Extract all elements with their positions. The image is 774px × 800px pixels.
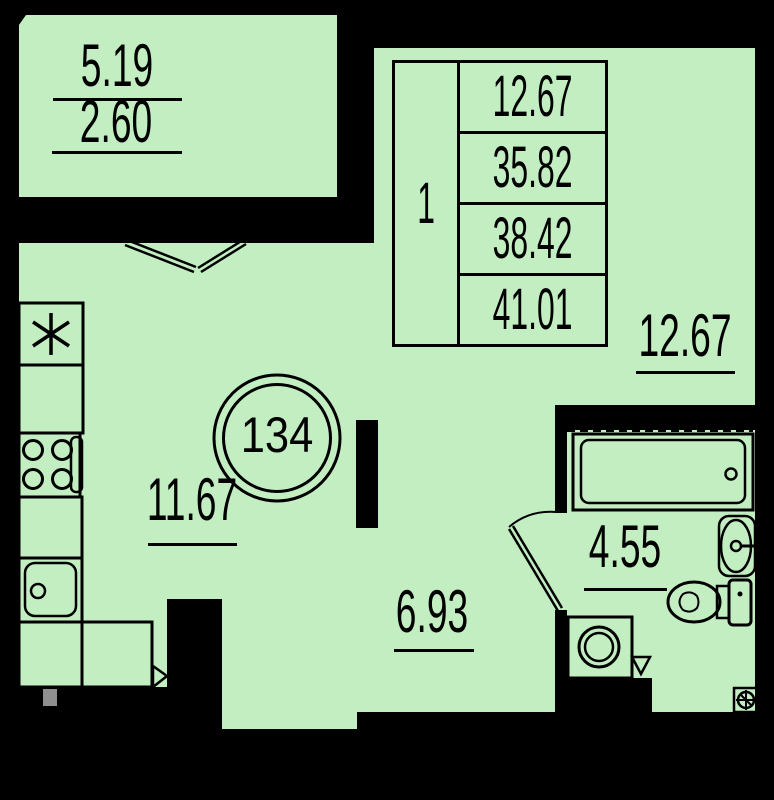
hall-south-floor xyxy=(357,687,555,712)
balcony-underline-2 xyxy=(52,151,182,154)
hallway-area-label: 6.93 xyxy=(370,582,494,642)
bottom-wall-kitchen xyxy=(0,687,167,745)
bathroom-left-wall-lower xyxy=(555,610,567,687)
under-balcony-floor xyxy=(19,243,374,405)
summary-value-2: 35.82 xyxy=(493,139,573,197)
bottom-wall-nook xyxy=(222,729,357,745)
apartment-number: 134 xyxy=(190,410,364,460)
shaft-wall xyxy=(167,599,222,745)
kitchen-underline xyxy=(148,543,237,546)
entry-nook-floor xyxy=(222,687,357,729)
toilet-tank-button xyxy=(738,592,743,597)
bathroom-top-wall xyxy=(555,405,755,430)
bottom-wall-washer xyxy=(555,678,652,745)
summary-value-1: 12.67 xyxy=(493,68,573,126)
bathroom-underline xyxy=(584,588,667,591)
bottom-wall-hall xyxy=(357,712,555,745)
floor-plan: 5.19 2.60 11.67 6.93 4.55 12.67 134 1 12… xyxy=(0,0,774,800)
bathroom-left-wall-upper xyxy=(555,405,567,513)
table-row: 41.01 xyxy=(460,273,605,344)
left-wall xyxy=(0,0,19,687)
pipe-riser xyxy=(42,688,58,707)
table-row: 35.82 xyxy=(460,131,605,202)
table-row: 38.42 xyxy=(460,202,605,273)
kitchen-area-label: 11.67 xyxy=(130,470,254,530)
summary-values-column: 12.67 35.82 38.42 41.01 xyxy=(460,63,605,344)
top-wall xyxy=(337,0,774,48)
summary-table: 1 12.67 35.82 38.42 41.01 xyxy=(392,60,608,347)
balcony-top-wall xyxy=(0,0,380,15)
living-room-underline xyxy=(636,371,735,374)
balcony-bottom-wall xyxy=(0,197,374,243)
table-row: 12.67 xyxy=(460,63,605,131)
summary-value-4: 41.01 xyxy=(493,281,573,339)
right-wall xyxy=(755,40,774,712)
bottom-wall-bathroom xyxy=(652,712,774,745)
summary-value-3: 38.42 xyxy=(493,210,573,268)
bathroom-area-label: 4.55 xyxy=(563,517,687,577)
rooms-count: 1 xyxy=(417,175,435,233)
balcony-area-counted: 2.60 xyxy=(54,92,178,152)
summary-rooms-count-cell: 1 xyxy=(395,63,460,344)
balcony-area-total: 5.19 xyxy=(55,36,179,96)
hallway-underline xyxy=(394,649,474,652)
living-room-area-label: 12.67 xyxy=(623,306,747,366)
